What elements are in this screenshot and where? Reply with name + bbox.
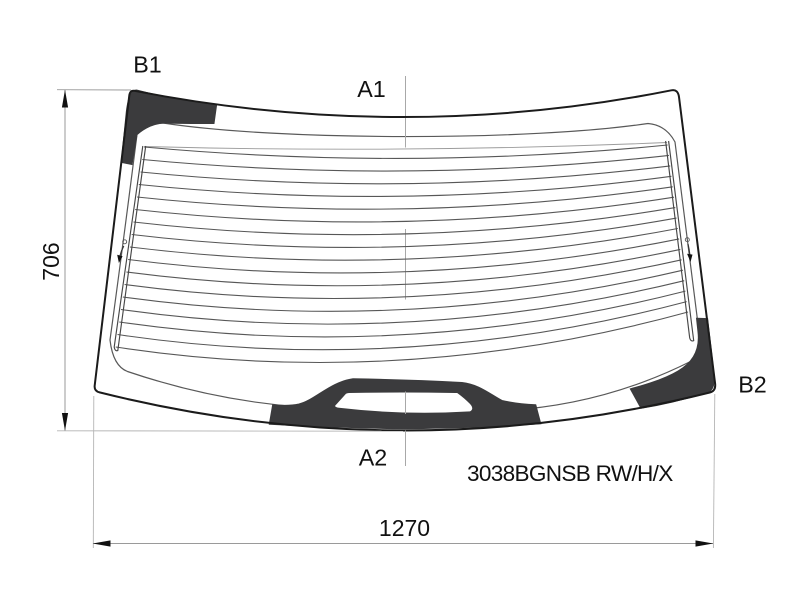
svg-text:B2: B2	[738, 372, 767, 398]
svg-text:3038BGNSB RW/H/X: 3038BGNSB RW/H/X	[467, 461, 673, 486]
svg-text:A2: A2	[359, 444, 388, 470]
svg-text:1270: 1270	[379, 515, 430, 541]
svg-text:A1: A1	[357, 76, 386, 102]
svg-text:B1: B1	[133, 52, 162, 78]
svg-text:706: 706	[38, 242, 64, 280]
